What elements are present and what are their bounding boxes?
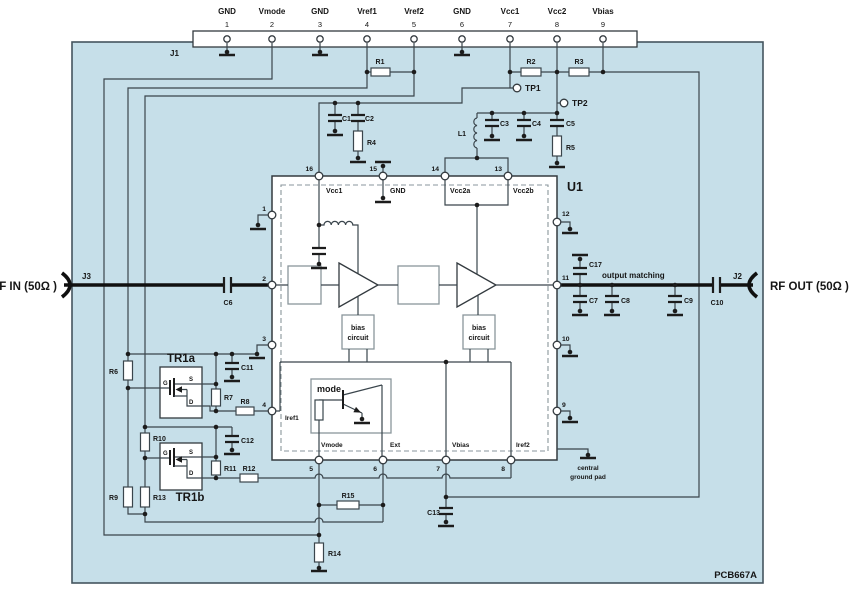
svg-text:mode: mode: [317, 384, 341, 394]
svg-text:Vcc2: Vcc2: [548, 7, 567, 16]
svg-text:1: 1: [262, 206, 266, 213]
c17-label: C17: [589, 262, 602, 269]
central-ground-label-1: central: [577, 465, 599, 472]
svg-text:G: G: [163, 381, 168, 387]
svg-text:bias: bias: [472, 325, 486, 332]
r1-body: [371, 68, 390, 76]
svg-text:Ext: Ext: [390, 442, 401, 449]
r14-body: [315, 543, 324, 562]
svg-text:GND: GND: [390, 188, 406, 195]
bias-circuit-1-box: [342, 315, 374, 349]
j3-ref: J3: [82, 272, 91, 281]
c12-label: C12: [241, 438, 254, 445]
svg-text:9: 9: [601, 20, 605, 29]
tr1a-ref: TR1a: [167, 353, 196, 365]
svg-text:7: 7: [508, 20, 512, 29]
svg-text:7: 7: [436, 466, 440, 473]
input-match-block: [288, 266, 321, 304]
r9-label: R9: [109, 495, 118, 502]
tp1-label: TP1: [525, 83, 541, 93]
svg-text:Vbias: Vbias: [452, 442, 470, 449]
svg-text:S: S: [189, 377, 193, 383]
svg-text:16: 16: [305, 166, 313, 173]
j2-ref: J2: [733, 272, 742, 281]
svg-text:3: 3: [262, 336, 266, 343]
r8-label: R8: [241, 399, 250, 406]
svg-text:G: G: [163, 451, 168, 457]
r12-label: R12: [243, 466, 256, 473]
r5-body: [553, 136, 562, 156]
l1-label: L1: [458, 131, 466, 138]
svg-text:1: 1: [225, 20, 229, 29]
r14-label: R14: [328, 551, 341, 558]
svg-text:8: 8: [555, 20, 559, 29]
r6-label: R6: [109, 369, 118, 376]
c6-label: C6: [224, 300, 233, 307]
r11-label: R11: [224, 466, 237, 473]
interstage-match-block: [398, 266, 439, 304]
r4-body: [354, 131, 363, 151]
tr1b-ref: TR1b: [176, 492, 205, 504]
r3-body: [569, 68, 589, 76]
svg-text:9: 9: [562, 402, 566, 409]
c11-label: C11: [241, 365, 254, 372]
svg-text:13: 13: [494, 166, 502, 173]
svg-text:11: 11: [562, 275, 569, 282]
svg-text:10: 10: [562, 336, 570, 343]
svg-text:Vbias: Vbias: [592, 7, 614, 16]
r15-body: [337, 501, 359, 509]
r7-body: [212, 389, 221, 406]
svg-text:12: 12: [562, 211, 570, 218]
svg-text:GND: GND: [453, 7, 471, 16]
svg-text:Vcc1: Vcc1: [326, 188, 342, 195]
schematic-page: GND1 Vmode2 GND3 Vref14 Vref25 GND6 Vcc1…: [0, 0, 850, 594]
r9-body: [124, 487, 133, 507]
r2-label: R2: [527, 59, 536, 66]
svg-text:GND: GND: [218, 7, 236, 16]
svg-text:Vcc2a: Vcc2a: [450, 188, 470, 195]
mode-resistor-body: [315, 400, 323, 420]
c2-label: C2: [365, 116, 374, 123]
central-ground-label-2: ground pad: [570, 474, 606, 481]
c7-label: C7: [589, 298, 598, 305]
tp1-circle: [513, 84, 521, 92]
svg-text:Iref1: Iref1: [285, 415, 299, 422]
svg-text:2: 2: [262, 276, 266, 283]
svg-text:Vref1: Vref1: [357, 7, 377, 16]
svg-text:15: 15: [369, 166, 377, 173]
svg-text:GND: GND: [311, 7, 329, 16]
r12-body: [240, 474, 258, 482]
svg-text:5: 5: [309, 466, 313, 473]
r1-label: R1: [376, 59, 385, 66]
c13-label: C13: [427, 510, 440, 517]
svg-text:14: 14: [431, 166, 439, 173]
svg-text:5: 5: [412, 20, 416, 29]
r10-label: R10: [153, 436, 166, 443]
r4-label: R4: [367, 140, 376, 147]
j1-pin-labels: GND1 Vmode2 GND3 Vref14 Vref25 GND6 Vcc1…: [218, 7, 614, 29]
svg-text:6: 6: [460, 20, 464, 29]
r13-label: R13: [153, 495, 166, 502]
svg-text:4: 4: [262, 402, 266, 409]
r8-body: [236, 407, 254, 415]
svg-text:Vcc1: Vcc1: [501, 7, 520, 16]
j1-ref: J1: [170, 49, 179, 58]
c8-label: C8: [621, 298, 630, 305]
c4-label: C4: [532, 121, 541, 128]
svg-text:circuit: circuit: [347, 335, 369, 342]
c5-label: C5: [566, 121, 575, 128]
board-name: PCB667A: [714, 570, 757, 581]
svg-text:S: S: [189, 450, 193, 456]
c3-label: C3: [500, 121, 509, 128]
c9-label: C9: [684, 298, 693, 305]
svg-text:Vref2: Vref2: [404, 7, 424, 16]
svg-text:4: 4: [365, 20, 369, 29]
bias-circuit-2-box: [463, 315, 495, 349]
r2-body: [521, 68, 541, 76]
c1-label: C1: [342, 116, 351, 123]
r11-body: [212, 461, 221, 475]
svg-text:8: 8: [501, 466, 505, 473]
svg-text:2: 2: [270, 20, 274, 29]
pcb-schematic: GND1 Vmode2 GND3 Vref14 Vref25 GND6 Vcc1…: [0, 0, 850, 594]
svg-text:Vcc2b: Vcc2b: [513, 188, 534, 195]
svg-text:Iref2: Iref2: [516, 442, 530, 449]
svg-text:circuit: circuit: [468, 335, 490, 342]
svg-text:D: D: [189, 471, 194, 477]
output-matching-label: output matching: [602, 271, 665, 280]
r10-body: [141, 433, 150, 451]
svg-text:bias: bias: [351, 325, 365, 332]
tp2-circle: [560, 99, 568, 107]
rf-in-label: RF IN (50Ω ): [0, 281, 57, 293]
svg-text:D: D: [189, 400, 194, 406]
r13-body: [141, 487, 150, 507]
svg-text:Vmode: Vmode: [259, 7, 286, 16]
r6-body: [124, 361, 133, 380]
svg-text:6: 6: [373, 466, 377, 473]
svg-text:Vmode: Vmode: [321, 442, 343, 449]
u1-ref: U1: [567, 180, 583, 194]
r7-label: R7: [224, 395, 233, 402]
r5-label: R5: [566, 145, 575, 152]
tr1a-box: [160, 367, 202, 418]
r3-label: R3: [575, 59, 584, 66]
rf-out-label: RF OUT (50Ω ): [770, 281, 849, 293]
svg-text:3: 3: [318, 20, 322, 29]
r15-label: R15: [342, 493, 355, 500]
tp2-label: TP2: [572, 98, 588, 108]
c10-label: C10: [711, 300, 724, 307]
